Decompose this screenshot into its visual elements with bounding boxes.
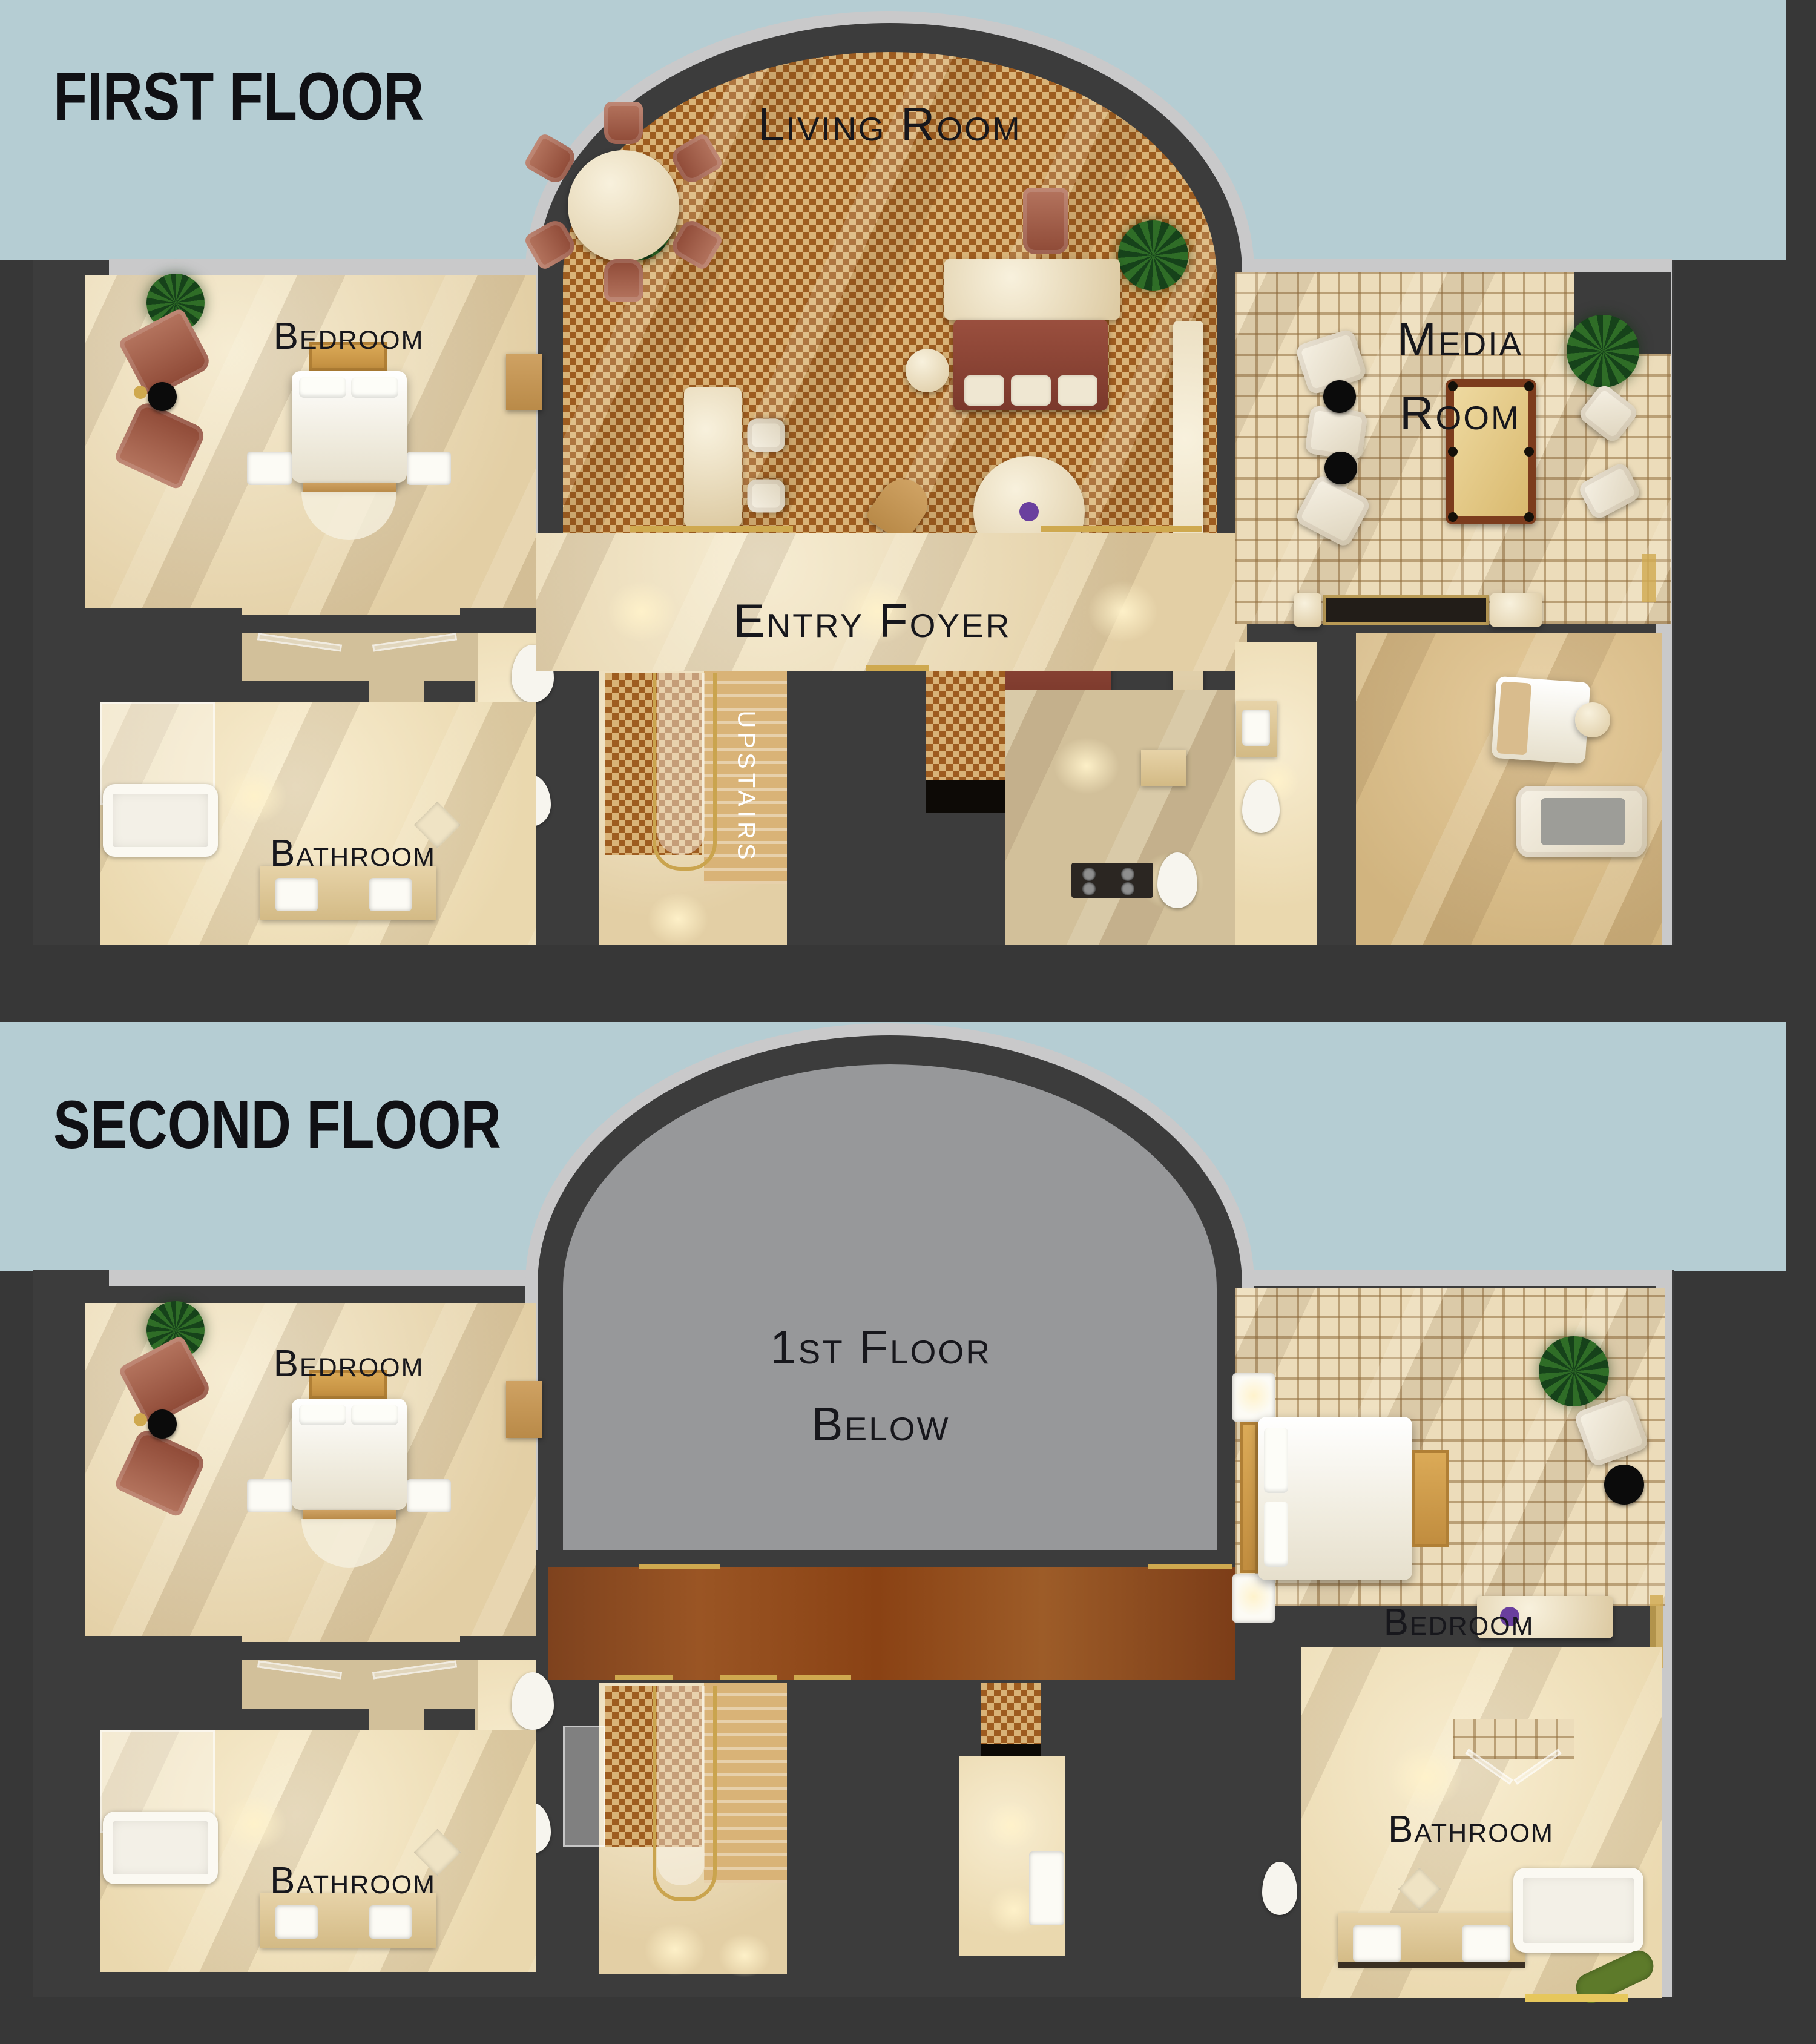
entry-door-threshold xyxy=(866,665,929,671)
media-room-label-line2: Room xyxy=(1400,389,1521,437)
speaker-cabinet xyxy=(1294,593,1321,627)
bridge-walkway xyxy=(548,1567,1235,1680)
pillow xyxy=(351,1405,398,1425)
sink xyxy=(275,1905,318,1939)
plant xyxy=(1118,220,1188,291)
hall-closet xyxy=(926,671,1005,780)
writing-desk xyxy=(506,354,542,410)
writing-desk xyxy=(506,1381,542,1438)
side-table xyxy=(148,382,177,411)
bedroom-label: Bedroom xyxy=(274,1345,424,1383)
hall-closet xyxy=(981,1683,1041,1744)
bed-bench xyxy=(303,1510,396,1520)
living-room-label: Living Room xyxy=(758,101,1022,148)
pillow xyxy=(299,1405,346,1425)
open-to-below-arch xyxy=(525,1023,1254,1550)
dining-chair xyxy=(604,259,643,302)
pillow xyxy=(1264,1428,1288,1493)
bed-headboard xyxy=(1240,1422,1258,1573)
bed xyxy=(292,371,407,483)
entry-foyer-label: Entry Foyer xyxy=(734,597,1012,644)
pillow xyxy=(299,377,346,398)
open-to-below-label-line1: 1st Floor xyxy=(770,1324,992,1371)
tv-console xyxy=(1323,595,1489,625)
floorplan-canvas: FIRST FLOOR xyxy=(0,0,1816,2044)
side-table xyxy=(1604,1465,1644,1505)
bathtub xyxy=(103,1812,218,1884)
sink xyxy=(369,878,412,911)
bridge-rail-trim xyxy=(720,1675,777,1680)
bridge-rail-trim xyxy=(794,1675,851,1680)
bedroom-south-wall xyxy=(85,1636,242,1660)
floor-lamp xyxy=(134,386,147,399)
hallway-floor xyxy=(1005,690,1247,945)
open-to-below-wall xyxy=(538,1035,1242,1550)
sink xyxy=(369,1905,412,1939)
plan-outline-top-right xyxy=(1247,1270,1659,1286)
armchair xyxy=(1023,188,1068,254)
nightstand xyxy=(407,1479,451,1512)
bridge-rail-trim xyxy=(639,1564,720,1569)
hall-closet-shadow xyxy=(926,780,1005,813)
sink xyxy=(1462,1925,1510,1962)
media-room-label-line1: Media xyxy=(1397,315,1523,363)
bedroom-south-wall xyxy=(460,608,536,633)
bridge-rail-trim xyxy=(1148,1564,1232,1569)
side-chair xyxy=(748,480,785,513)
side-table xyxy=(906,349,949,392)
side-chair xyxy=(748,419,785,452)
second-floor-title: SECOND FLOOR xyxy=(53,1086,501,1164)
center-bath-vanity xyxy=(1029,1851,1064,1925)
stair-railing xyxy=(653,673,717,871)
pillow xyxy=(351,377,398,398)
bathroom-north-wall xyxy=(100,1709,369,1730)
floor-lamp xyxy=(134,1413,147,1426)
bathroom-north-wall xyxy=(100,681,369,702)
powder-vanity xyxy=(1141,750,1186,786)
plant xyxy=(1539,1336,1609,1406)
nightstand xyxy=(247,452,292,485)
first-floor-left-wing: Bedroom Bathroom xyxy=(33,275,560,945)
plant xyxy=(1567,315,1639,387)
credenza-table xyxy=(684,387,742,527)
shower-stall xyxy=(563,1726,605,1847)
bathtub xyxy=(1513,1868,1643,1953)
bedroom-right-label: Bedroom xyxy=(1384,1604,1535,1641)
treadmill xyxy=(1516,786,1647,857)
bed xyxy=(1258,1417,1412,1580)
second-floor-section: SECOND FLOOR 1st Floor Below xyxy=(0,1022,1816,2044)
toilet xyxy=(512,1672,554,1730)
bed-bench xyxy=(303,483,396,492)
curtain-shimmer xyxy=(1642,554,1656,602)
bedroom-south-wall xyxy=(460,1636,536,1660)
nightstand xyxy=(247,1479,292,1512)
upstairs-label: UPSTAIRS xyxy=(732,710,760,863)
drink-table xyxy=(1324,452,1357,484)
bridge-rail-trim xyxy=(615,1675,673,1680)
drink-table xyxy=(1323,380,1356,413)
open-to-below-void xyxy=(563,1064,1217,1550)
bathtub xyxy=(103,784,218,857)
plan-outline-top-left xyxy=(109,259,533,275)
bedroom-south-wall xyxy=(85,608,242,633)
bathroom-north-wall xyxy=(424,681,475,702)
speaker-cabinet xyxy=(1490,593,1542,627)
spa-stool xyxy=(1575,702,1610,737)
open-to-below-label-line2: Below xyxy=(812,1400,950,1448)
sofa-cushion xyxy=(1011,375,1051,406)
first-floor-title: FIRST FLOOR xyxy=(53,58,424,136)
sofa xyxy=(953,320,1108,410)
guest-bath-vanity xyxy=(1236,701,1277,757)
vanity-counter-edge xyxy=(1338,1962,1525,1968)
sofa-cushion xyxy=(964,375,1004,406)
nightstand-lamp xyxy=(1226,1368,1281,1423)
sink xyxy=(275,878,318,911)
bath-shelf xyxy=(1525,1994,1628,2002)
nightstand xyxy=(407,452,451,485)
kitchen-stove xyxy=(1071,863,1153,898)
door-threshold xyxy=(1041,526,1202,532)
plan-outline-top-left xyxy=(109,1270,527,1286)
sink xyxy=(1353,1925,1401,1962)
dining-table xyxy=(568,150,679,262)
bathroom-label: Bathroom xyxy=(270,1862,436,1900)
second-floor-left-wing: Bedroom Bathroom xyxy=(33,1303,560,1972)
sofa-cushion xyxy=(1058,375,1097,406)
bathroom-label: Bathroom xyxy=(270,835,436,872)
stair-railing xyxy=(653,1686,717,1901)
bathroom-north-wall xyxy=(424,1709,475,1730)
dining-chair xyxy=(604,102,643,144)
bed-bench xyxy=(1412,1450,1449,1547)
bedroom-label: Bedroom xyxy=(274,318,424,355)
bathroom-right-label: Bathroom xyxy=(1388,1811,1554,1848)
first-floor-section: FIRST FLOOR xyxy=(0,0,1816,1022)
flower-centerpiece xyxy=(1019,502,1039,521)
pillow xyxy=(1264,1502,1288,1567)
side-table xyxy=(148,1409,177,1439)
bed xyxy=(292,1399,407,1510)
door-threshold xyxy=(630,526,793,532)
sofa-console xyxy=(944,259,1120,320)
